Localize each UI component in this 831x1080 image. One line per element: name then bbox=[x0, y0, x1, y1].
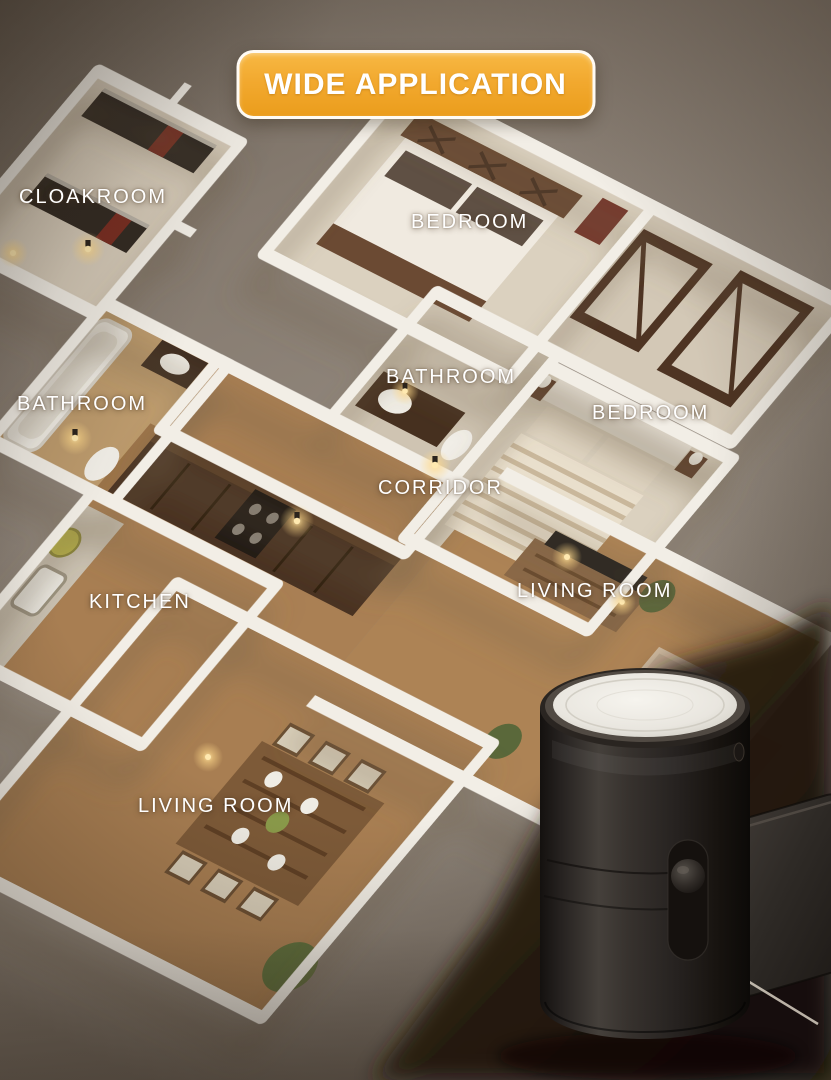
slider-knob bbox=[671, 859, 705, 893]
product-ground-shadow bbox=[498, 1032, 798, 1080]
product-slider-switch bbox=[668, 840, 708, 960]
product-night-light bbox=[0, 0, 831, 1080]
product-light-lens bbox=[553, 673, 737, 737]
poster: CLOAKROOM BEDROOM BATHROOM BATHROOM BEDR… bbox=[0, 0, 831, 1080]
side-button bbox=[734, 743, 744, 761]
